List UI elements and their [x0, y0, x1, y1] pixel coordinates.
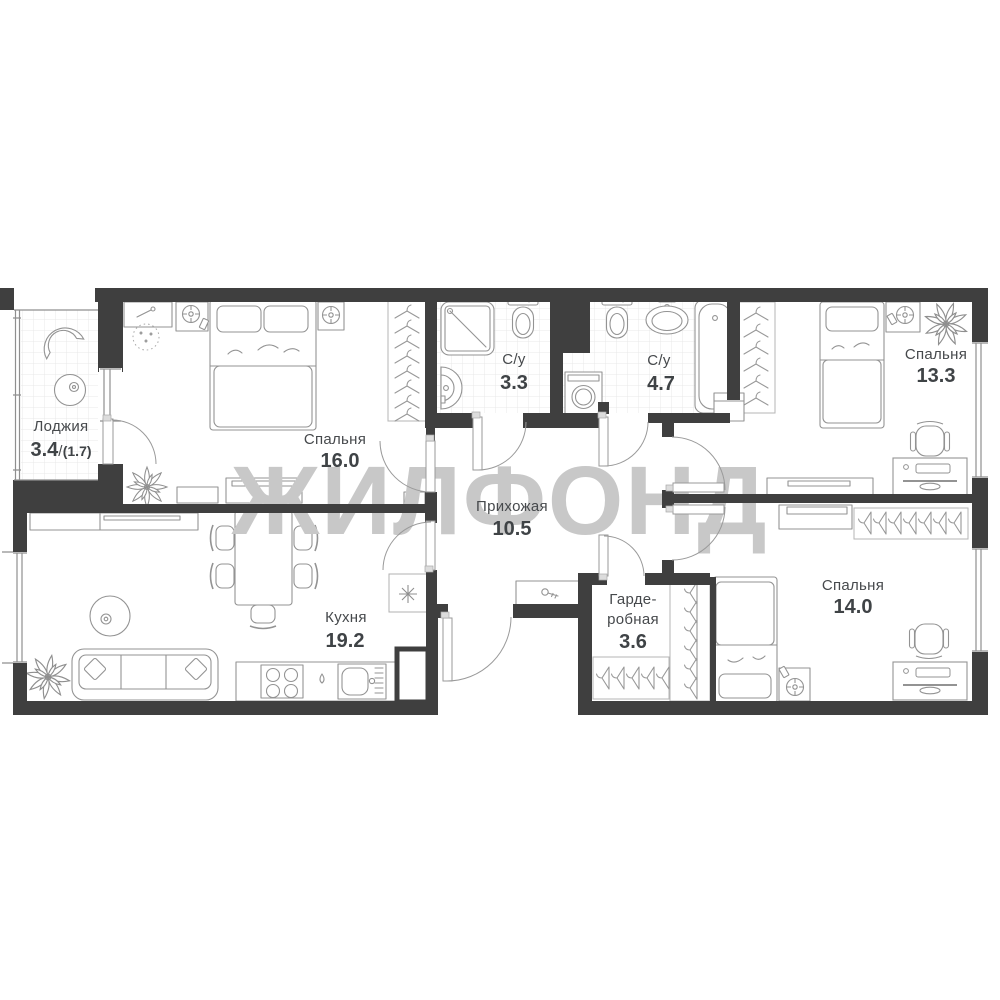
dresser-icon: [779, 505, 852, 529]
shower-icon: [441, 302, 494, 355]
svg-text:3.4/(1.7): 3.4/(1.7): [30, 439, 91, 461]
desk-chair-icon: [911, 422, 950, 457]
balcony-door: [103, 415, 156, 464]
kitchen-niche: [397, 649, 428, 702]
plant-icon: [23, 652, 74, 703]
fridge-icon: [389, 574, 427, 612]
room-label-bedroom-3: Спальня 14.0: [822, 577, 884, 618]
desk-chair-icon: [910, 624, 949, 659]
tv-console-icon: [30, 513, 198, 530]
svg-text:С/у: С/у: [502, 351, 526, 368]
double-bed-icon: [210, 300, 316, 430]
svg-text:19.2: 19.2: [326, 630, 365, 652]
plant-icon: [918, 296, 974, 352]
sofa-icon: [72, 649, 218, 700]
floor-lamp-icon: [90, 596, 130, 636]
bedroom-3-window: [972, 548, 988, 652]
entrance-door: [441, 612, 511, 681]
svg-text:робная: робная: [607, 611, 659, 628]
wardrobe-hangers-icon: [593, 657, 669, 699]
bedroom-2-window: [972, 342, 988, 478]
hanger-rod-icon: [854, 508, 968, 539]
shelf-icon: [124, 302, 172, 327]
wardrobe-hangers-icon: [670, 582, 710, 701]
room-label-bedroom-2: Спальня 13.3: [905, 346, 967, 387]
svg-text:Спальня: Спальня: [905, 346, 967, 363]
rug-icon: [133, 324, 159, 350]
nightstand-icon: [318, 302, 344, 330]
single-bed-icon: [820, 302, 884, 428]
kitchen-window: [2, 552, 27, 663]
svg-text:16.0: 16.0: [321, 450, 360, 472]
wardrobe-hangers-icon: [388, 300, 426, 421]
kitchen-counter-icon: [236, 662, 400, 701]
svg-text:14.0: 14.0: [834, 596, 873, 618]
svg-text:С/у: С/у: [647, 352, 671, 369]
floorplan-image: ЖИЛФОНД: [0, 0, 1000, 1000]
washing-machine-icon: [565, 372, 602, 414]
desk-icon: [893, 458, 967, 496]
svg-text:Спальня: Спальня: [304, 431, 366, 448]
plant-icon: [127, 467, 167, 507]
console-table-icon: [516, 581, 586, 606]
nightstand-icon: [886, 302, 920, 332]
loggia-table-icon: [55, 375, 86, 406]
room-label-wardrobe: Гарде- робная 3.6: [607, 591, 659, 653]
room-label-bathroom-1: С/у 3.3: [500, 351, 528, 394]
low-cabinet-icon: [177, 487, 218, 503]
balcony-window: [99, 368, 122, 422]
svg-text:4.7: 4.7: [647, 373, 675, 395]
svg-text:Спальня: Спальня: [822, 577, 884, 594]
svg-text:3.3: 3.3: [500, 372, 528, 394]
room-label-kitchen: Кухня 19.2: [325, 609, 367, 652]
svg-text:Лоджия: Лоджия: [34, 418, 89, 435]
nightstand-icon: [176, 302, 209, 331]
nightstand-icon: [779, 666, 810, 701]
duct-shaft: [563, 293, 590, 353]
floorplan-svg: ЖИЛФОНД: [0, 0, 1000, 1000]
svg-text:13.3: 13.3: [917, 365, 956, 387]
single-bed-icon: [713, 577, 777, 703]
svg-text:Кухня: Кухня: [325, 609, 367, 626]
svg-text:3.6: 3.6: [619, 631, 647, 653]
svg-text:Прихожая: Прихожая: [476, 498, 548, 515]
svg-text:Гарде-: Гарде-: [609, 591, 657, 608]
svg-text:10.5: 10.5: [493, 518, 532, 540]
desk-icon: [893, 662, 967, 700]
